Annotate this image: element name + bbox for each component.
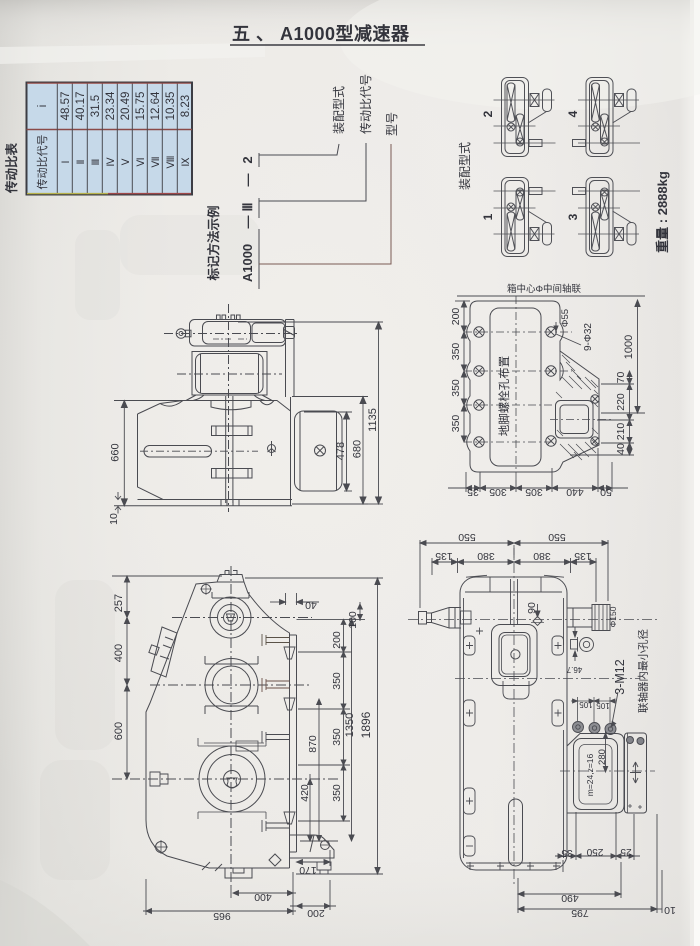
- svg-text:箱中心Φ中间轴联: 箱中心Φ中间轴联: [507, 283, 582, 295]
- svg-text:Ⅵ: Ⅵ: [136, 157, 147, 166]
- svg-text:Ⅲ: Ⅲ: [91, 159, 102, 166]
- svg-text:Ⅲ: Ⅲ: [240, 203, 255, 212]
- svg-text:70: 70: [615, 372, 627, 384]
- svg-text:A1000: A1000: [240, 244, 255, 282]
- svg-text:46.7: 46.7: [566, 665, 582, 674]
- svg-text:15.75: 15.75: [135, 92, 147, 121]
- svg-text:490: 490: [561, 892, 579, 904]
- svg-text:350: 350: [450, 415, 462, 433]
- svg-text:550: 550: [458, 531, 476, 543]
- svg-text:350: 350: [450, 379, 462, 397]
- svg-text:Ⅸ: Ⅸ: [181, 157, 192, 166]
- svg-text:3-M12: 3-M12: [613, 659, 627, 694]
- svg-text:478: 478: [335, 442, 347, 460]
- svg-text:257: 257: [113, 594, 125, 612]
- svg-text:200: 200: [450, 308, 462, 326]
- svg-text:传动比代号: 传动比代号: [358, 74, 373, 134]
- svg-text:—: —: [240, 216, 255, 229]
- svg-text:2: 2: [481, 110, 495, 117]
- svg-text:440: 440: [566, 486, 584, 498]
- svg-text:200: 200: [307, 907, 325, 919]
- svg-text:305: 305: [525, 486, 543, 498]
- svg-text:550: 550: [548, 531, 566, 543]
- svg-text:660: 660: [110, 443, 122, 461]
- svg-text:100: 100: [347, 611, 359, 629]
- svg-text:1350: 1350: [344, 713, 356, 737]
- svg-text:200: 200: [331, 631, 343, 649]
- svg-text:重量 : 2888kg: 重量 : 2888kg: [655, 171, 670, 253]
- svg-text:装配型式: 装配型式: [332, 86, 346, 134]
- svg-text:350: 350: [331, 784, 343, 802]
- svg-text:135: 135: [574, 550, 592, 562]
- svg-text:795: 795: [571, 907, 589, 919]
- svg-text:i: i: [37, 105, 49, 108]
- svg-text:联轴器内最小孔径: 联轴器内最小孔径: [637, 629, 650, 713]
- svg-text:305: 305: [489, 486, 507, 498]
- svg-text:4: 4: [566, 110, 580, 117]
- svg-text:210: 210: [615, 423, 627, 441]
- svg-text:105: 105: [596, 701, 610, 710]
- svg-text:350: 350: [331, 728, 343, 746]
- svg-text:40: 40: [615, 443, 627, 455]
- svg-text:Ⅳ: Ⅳ: [106, 157, 117, 167]
- svg-text:23.34: 23.34: [105, 91, 117, 120]
- svg-text:装配型式: 装配型式: [458, 142, 472, 190]
- svg-text:90: 90: [526, 602, 538, 614]
- svg-text:350: 350: [331, 672, 343, 690]
- svg-text:—: —: [240, 174, 255, 187]
- svg-text:965: 965: [213, 910, 231, 922]
- svg-text:105: 105: [579, 700, 593, 709]
- svg-text:8.23: 8.23: [180, 95, 192, 117]
- svg-text:10.35: 10.35: [165, 92, 177, 121]
- svg-text:40: 40: [305, 599, 317, 611]
- svg-text:870: 870: [307, 735, 319, 753]
- svg-text:420: 420: [299, 784, 311, 802]
- svg-text:20.49: 20.49: [120, 92, 132, 121]
- svg-text:280: 280: [597, 749, 608, 765]
- svg-text:9-Φ32: 9-Φ32: [583, 323, 594, 351]
- svg-text:1000: 1000: [623, 335, 635, 359]
- svg-text:10: 10: [664, 904, 676, 916]
- svg-text:350: 350: [450, 343, 462, 361]
- svg-text:10: 10: [108, 513, 120, 525]
- svg-text:2: 2: [240, 156, 255, 163]
- svg-text:25: 25: [620, 846, 632, 857]
- svg-text:35: 35: [467, 486, 479, 498]
- svg-text:35: 35: [561, 847, 573, 858]
- svg-text:220: 220: [615, 393, 627, 411]
- svg-text:50: 50: [600, 486, 612, 498]
- svg-text:600: 600: [113, 722, 125, 740]
- svg-text:380: 380: [477, 550, 495, 562]
- svg-text:Ⅷ: Ⅷ: [166, 155, 177, 168]
- svg-text:五 、 A1000型减速器: 五 、 A1000型减速器: [232, 23, 410, 44]
- svg-text:135: 135: [435, 550, 453, 562]
- svg-text:380: 380: [533, 550, 551, 562]
- svg-text:1: 1: [481, 213, 495, 220]
- svg-text:250: 250: [586, 846, 603, 857]
- svg-text:400: 400: [254, 891, 272, 903]
- svg-text:48.57: 48.57: [60, 92, 72, 121]
- svg-text:Φ55: Φ55: [560, 309, 571, 327]
- svg-text:40.17: 40.17: [75, 92, 87, 121]
- svg-text:1135: 1135: [367, 408, 379, 432]
- svg-text:400: 400: [113, 644, 125, 662]
- svg-text:31.5: 31.5: [90, 95, 102, 117]
- svg-text:Φ150: Φ150: [608, 606, 618, 627]
- svg-text:Ⅱ: Ⅱ: [76, 160, 87, 165]
- svg-text:Ⅴ: Ⅴ: [121, 158, 132, 165]
- svg-text:170: 170: [299, 864, 317, 876]
- svg-text:12.64: 12.64: [150, 91, 162, 120]
- svg-text:680: 680: [352, 440, 364, 458]
- svg-text:传动比代号: 传动比代号: [36, 135, 49, 190]
- svg-text:3: 3: [566, 213, 580, 220]
- svg-text:地脚螺栓孔布置: 地脚螺栓孔布置: [497, 356, 511, 437]
- svg-text:m=24,z=16: m=24,z=16: [585, 753, 595, 796]
- svg-text:1896: 1896: [359, 711, 373, 738]
- svg-text:Ⅰ: Ⅰ: [61, 161, 72, 164]
- svg-text:标记方法示例: 标记方法示例: [206, 205, 221, 281]
- svg-text:型号: 型号: [385, 112, 399, 136]
- svg-text:Ⅶ: Ⅶ: [151, 156, 162, 167]
- svg-text:传动比表: 传动比表: [4, 143, 19, 195]
